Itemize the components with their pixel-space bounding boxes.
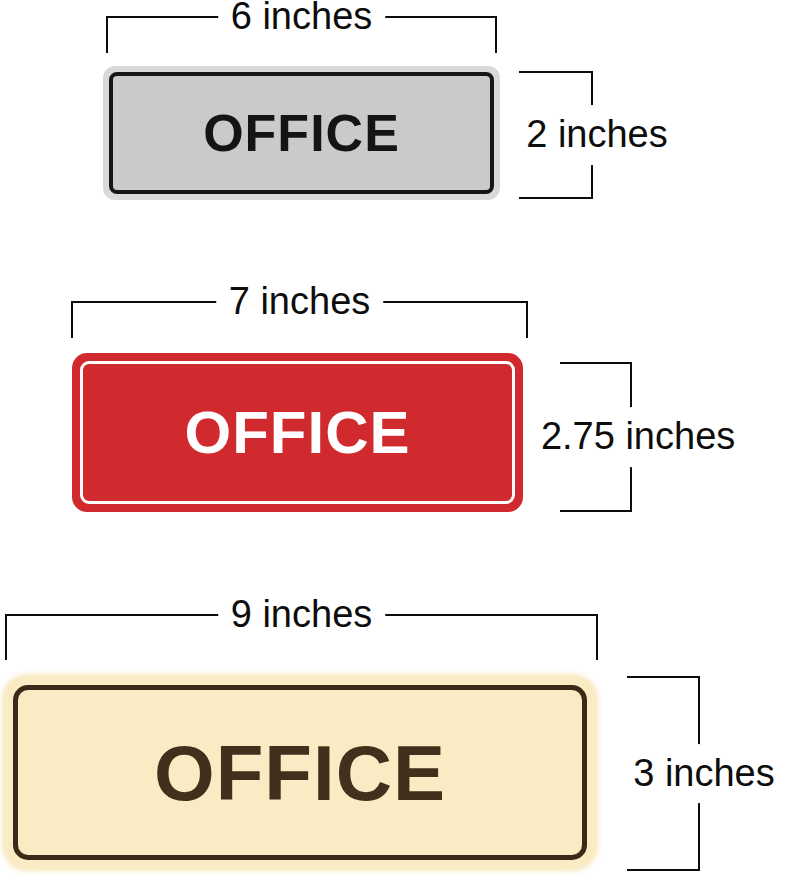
width-dimension-label: 9 inches — [218, 594, 386, 636]
height-dimension-label: 2.75 inches — [537, 407, 739, 467]
width-dimension-label: 7 inches — [216, 281, 384, 323]
office-sign-gray: OFFICE — [103, 66, 500, 200]
dimension-end-tick — [495, 16, 497, 53]
sign-text: OFFICE — [203, 107, 400, 159]
dimension-end-tick — [5, 614, 7, 660]
height-dimension-bracket-3in: 3 inches — [627, 676, 700, 871]
office-sign-cream: OFFICE — [4, 676, 596, 869]
width-dimension-label: 6 inches — [218, 0, 386, 38]
sign-face: OFFICE — [109, 72, 494, 194]
office-sign-red: OFFICE — [72, 353, 523, 512]
width-dimension-bracket-7in: 7 inches — [71, 301, 528, 338]
product-dimension-figure: 6 inches 2 inches OFFICE 7 inches 2.75 i… — [0, 0, 795, 876]
dimension-end-tick — [526, 301, 528, 338]
dimension-end-tick — [596, 614, 598, 660]
width-dimension-bracket-6in: 6 inches — [106, 16, 497, 53]
height-dimension-bracket-2-75in: 2.75 inches — [560, 362, 632, 512]
width-dimension-bracket-9in: 9 inches — [5, 614, 598, 660]
sign-text: OFFICE — [185, 403, 411, 463]
sign-text: OFFICE — [154, 734, 446, 812]
height-dimension-bracket-2in: 2 inches — [519, 71, 593, 199]
height-dimension-label: 2 inches — [522, 105, 672, 165]
sign-face: OFFICE — [13, 685, 587, 860]
height-dimension-label: 3 inches — [629, 744, 779, 804]
dimension-end-tick — [71, 301, 73, 338]
sign-face: OFFICE — [80, 361, 515, 504]
dimension-end-tick — [106, 16, 108, 53]
